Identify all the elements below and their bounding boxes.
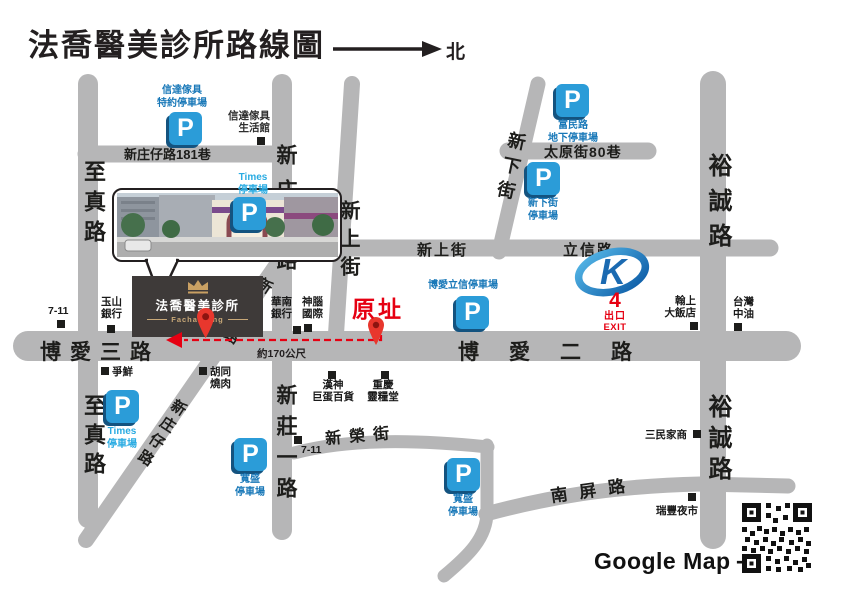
- road-label-taiyuan-lane80: 太原街80巷: [544, 142, 622, 162]
- north-arrow-head-icon: [422, 41, 442, 57]
- building-marker-icon: [101, 367, 109, 375]
- landmark-sanmin-school: 三民家商: [645, 429, 687, 441]
- north-arrow: [0, 0, 843, 80]
- lingliang-line2: 靈糧堂: [360, 391, 406, 403]
- parking-label-kuansheng-west: 寬盛 停車場: [230, 474, 270, 499]
- clinic-brand: Facharming: [143, 315, 252, 324]
- landmark-esun-bank: 玉山 銀行: [101, 296, 122, 321]
- landmark-senao: 神腦 國際: [302, 296, 323, 321]
- clinic-photo: [117, 193, 338, 257]
- parking-label-xinxia: 新下街 停車場: [517, 198, 569, 223]
- parking-icon-times-north: P: [233, 197, 266, 230]
- hanshin-line1: 漢神: [310, 379, 356, 391]
- parking-icon-furniture: P: [169, 112, 202, 145]
- building-marker-icon: [734, 323, 742, 331]
- hanshin-line2: 巨蛋百貨: [310, 391, 356, 403]
- parking-label-boai-lixin: 博愛立信停車場: [428, 280, 498, 293]
- google-map-label: Google Map: [594, 548, 731, 575]
- qr-code: [742, 503, 812, 573]
- landmark-seven-eleven-west: 7-11: [48, 305, 68, 317]
- parking-icon-fumin: P: [556, 84, 589, 117]
- mrt-exit-number: 4: [594, 290, 636, 311]
- road-network: [0, 0, 843, 596]
- clinic-photo-bubble: [112, 188, 342, 262]
- parking-furniture-line1: 信達傢具: [142, 85, 222, 98]
- road-label-lane181: 新庄仔路181巷: [124, 144, 211, 163]
- parking-icon-times-south: P: [106, 390, 139, 423]
- parking-icon-boai-lixin: P: [456, 296, 489, 329]
- road-label-boai-3rd: 博愛三路: [40, 336, 160, 366]
- road-label-yucheng-lower: 裕誠路: [700, 394, 735, 487]
- road-label-yucheng-upper: 裕誠路: [700, 153, 735, 258]
- fumin-line2: 地下停車場: [538, 133, 608, 146]
- building-marker-icon: [57, 320, 65, 328]
- parking-label-times-south: Times 停車場: [102, 426, 142, 451]
- parking-icon-kuansheng-west: P: [234, 438, 267, 471]
- building-marker-icon: [693, 430, 701, 438]
- times-north-line2: 停車場: [233, 185, 273, 198]
- landmark-furniture-store: 信達傢具 生活館: [214, 110, 270, 135]
- esun-line2: 銀行: [101, 308, 122, 320]
- kuansheng-east-line1: 寬盛: [443, 494, 483, 507]
- building-marker-icon: [199, 367, 207, 375]
- furniture-store-line1: 信達傢具: [214, 110, 270, 122]
- huanan-line1: 華南: [271, 296, 292, 308]
- xinxia-line1: 新下街: [517, 198, 569, 211]
- origin-site-label: 原址: [352, 290, 404, 324]
- mrt-exit-zh: 出口: [594, 312, 636, 322]
- parking-label-furniture: 信達傢具 特約停車場: [142, 85, 222, 110]
- cpc-line2: 中油: [733, 308, 754, 320]
- building-marker-icon: [293, 326, 301, 334]
- crown-icon: [185, 279, 211, 294]
- north-label: 北: [446, 37, 465, 64]
- mrt-exit-en: EXIT: [594, 323, 636, 333]
- cpc-line1: 台灣: [733, 296, 754, 308]
- parking-label-times-north: Times 停車場: [233, 172, 273, 197]
- times-south-line1: Times: [102, 426, 142, 439]
- building-marker-icon: [688, 493, 696, 501]
- hotel-line1: 翰上: [658, 295, 696, 307]
- times-south-line2: 停車場: [102, 439, 142, 452]
- fumin-line1: 富民路: [538, 120, 608, 133]
- esun-line1: 玉山: [101, 296, 122, 308]
- bbq-line1: 胡同: [210, 366, 231, 378]
- road-label-xinzhuang-yi: 新莊一路: [270, 384, 300, 508]
- parking-label-fumin: 富民路 地下停車場: [538, 120, 608, 145]
- xinxia-line2: 停車場: [517, 211, 569, 224]
- building-marker-icon: [381, 371, 389, 379]
- landmark-bbq: 胡同 燒肉: [210, 366, 231, 391]
- parking-icon-kuansheng-east: P: [447, 458, 480, 491]
- landmark-huanan-bank: 華南 銀行: [271, 296, 292, 321]
- landmark-seven-eleven-south: 7-11: [301, 444, 321, 456]
- landmark-lingliang-hall: 重慶 靈糧堂: [360, 379, 406, 404]
- kuansheng-west-line1: 寬盛: [230, 474, 270, 487]
- landmark-sushi: 爭鮮: [112, 366, 133, 378]
- clinic-building-card: 法喬醫美診所 Facharming: [132, 276, 263, 337]
- parking-label-kuansheng-east: 寬盛 停車場: [443, 494, 483, 519]
- road-label-boai-2nd: 博愛二路: [458, 336, 662, 366]
- building-marker-icon: [294, 436, 302, 444]
- krtc-logo-letter: K: [600, 251, 629, 292]
- huanan-line2: 銀行: [271, 308, 292, 320]
- building-marker-icon: [304, 324, 312, 332]
- kuansheng-west-line2: 停車場: [230, 487, 270, 500]
- senao-line2: 國際: [302, 308, 323, 320]
- hotel-line2: 大飯店: [658, 307, 696, 319]
- furniture-store-line2: 生活館: [214, 122, 270, 134]
- distance-note: 約170公尺: [257, 346, 306, 361]
- landmark-ruifeng-market: 瑞豐夜市: [656, 505, 698, 517]
- building-marker-icon: [690, 322, 698, 330]
- kuansheng-east-line2: 停車場: [443, 507, 483, 520]
- parking-furniture-line2: 特約停車場: [142, 98, 222, 111]
- senao-line1: 神腦: [302, 296, 323, 308]
- road-label-xinshang-horizontal: 新上街: [417, 239, 468, 260]
- times-north-line1: Times: [233, 172, 273, 185]
- building-marker-icon: [107, 325, 115, 333]
- landmark-hotel: 翰上 大飯店: [658, 295, 696, 320]
- lingliang-line1: 重慶: [360, 379, 406, 391]
- landmark-cpc-gas: 台灣 中油: [733, 296, 754, 321]
- parking-icon-xinxia: P: [527, 162, 560, 195]
- building-marker-icon: [328, 371, 336, 379]
- landmark-hanshin-arena: 漢神 巨蛋百貨: [310, 379, 356, 404]
- bbq-line2: 燒肉: [210, 378, 231, 390]
- route-map: 法喬醫美診所路線圖 北 至真路 至真路 新庄仔路 新莊一路 新上街 裕誠路 裕誠…: [0, 0, 843, 596]
- clinic-name: 法喬醫美診所: [155, 295, 239, 314]
- mrt-exit-4: 4 出口 EXIT: [594, 290, 636, 333]
- building-marker-icon: [257, 137, 265, 145]
- road-label-zhizhen-upper: 至真路: [77, 160, 109, 250]
